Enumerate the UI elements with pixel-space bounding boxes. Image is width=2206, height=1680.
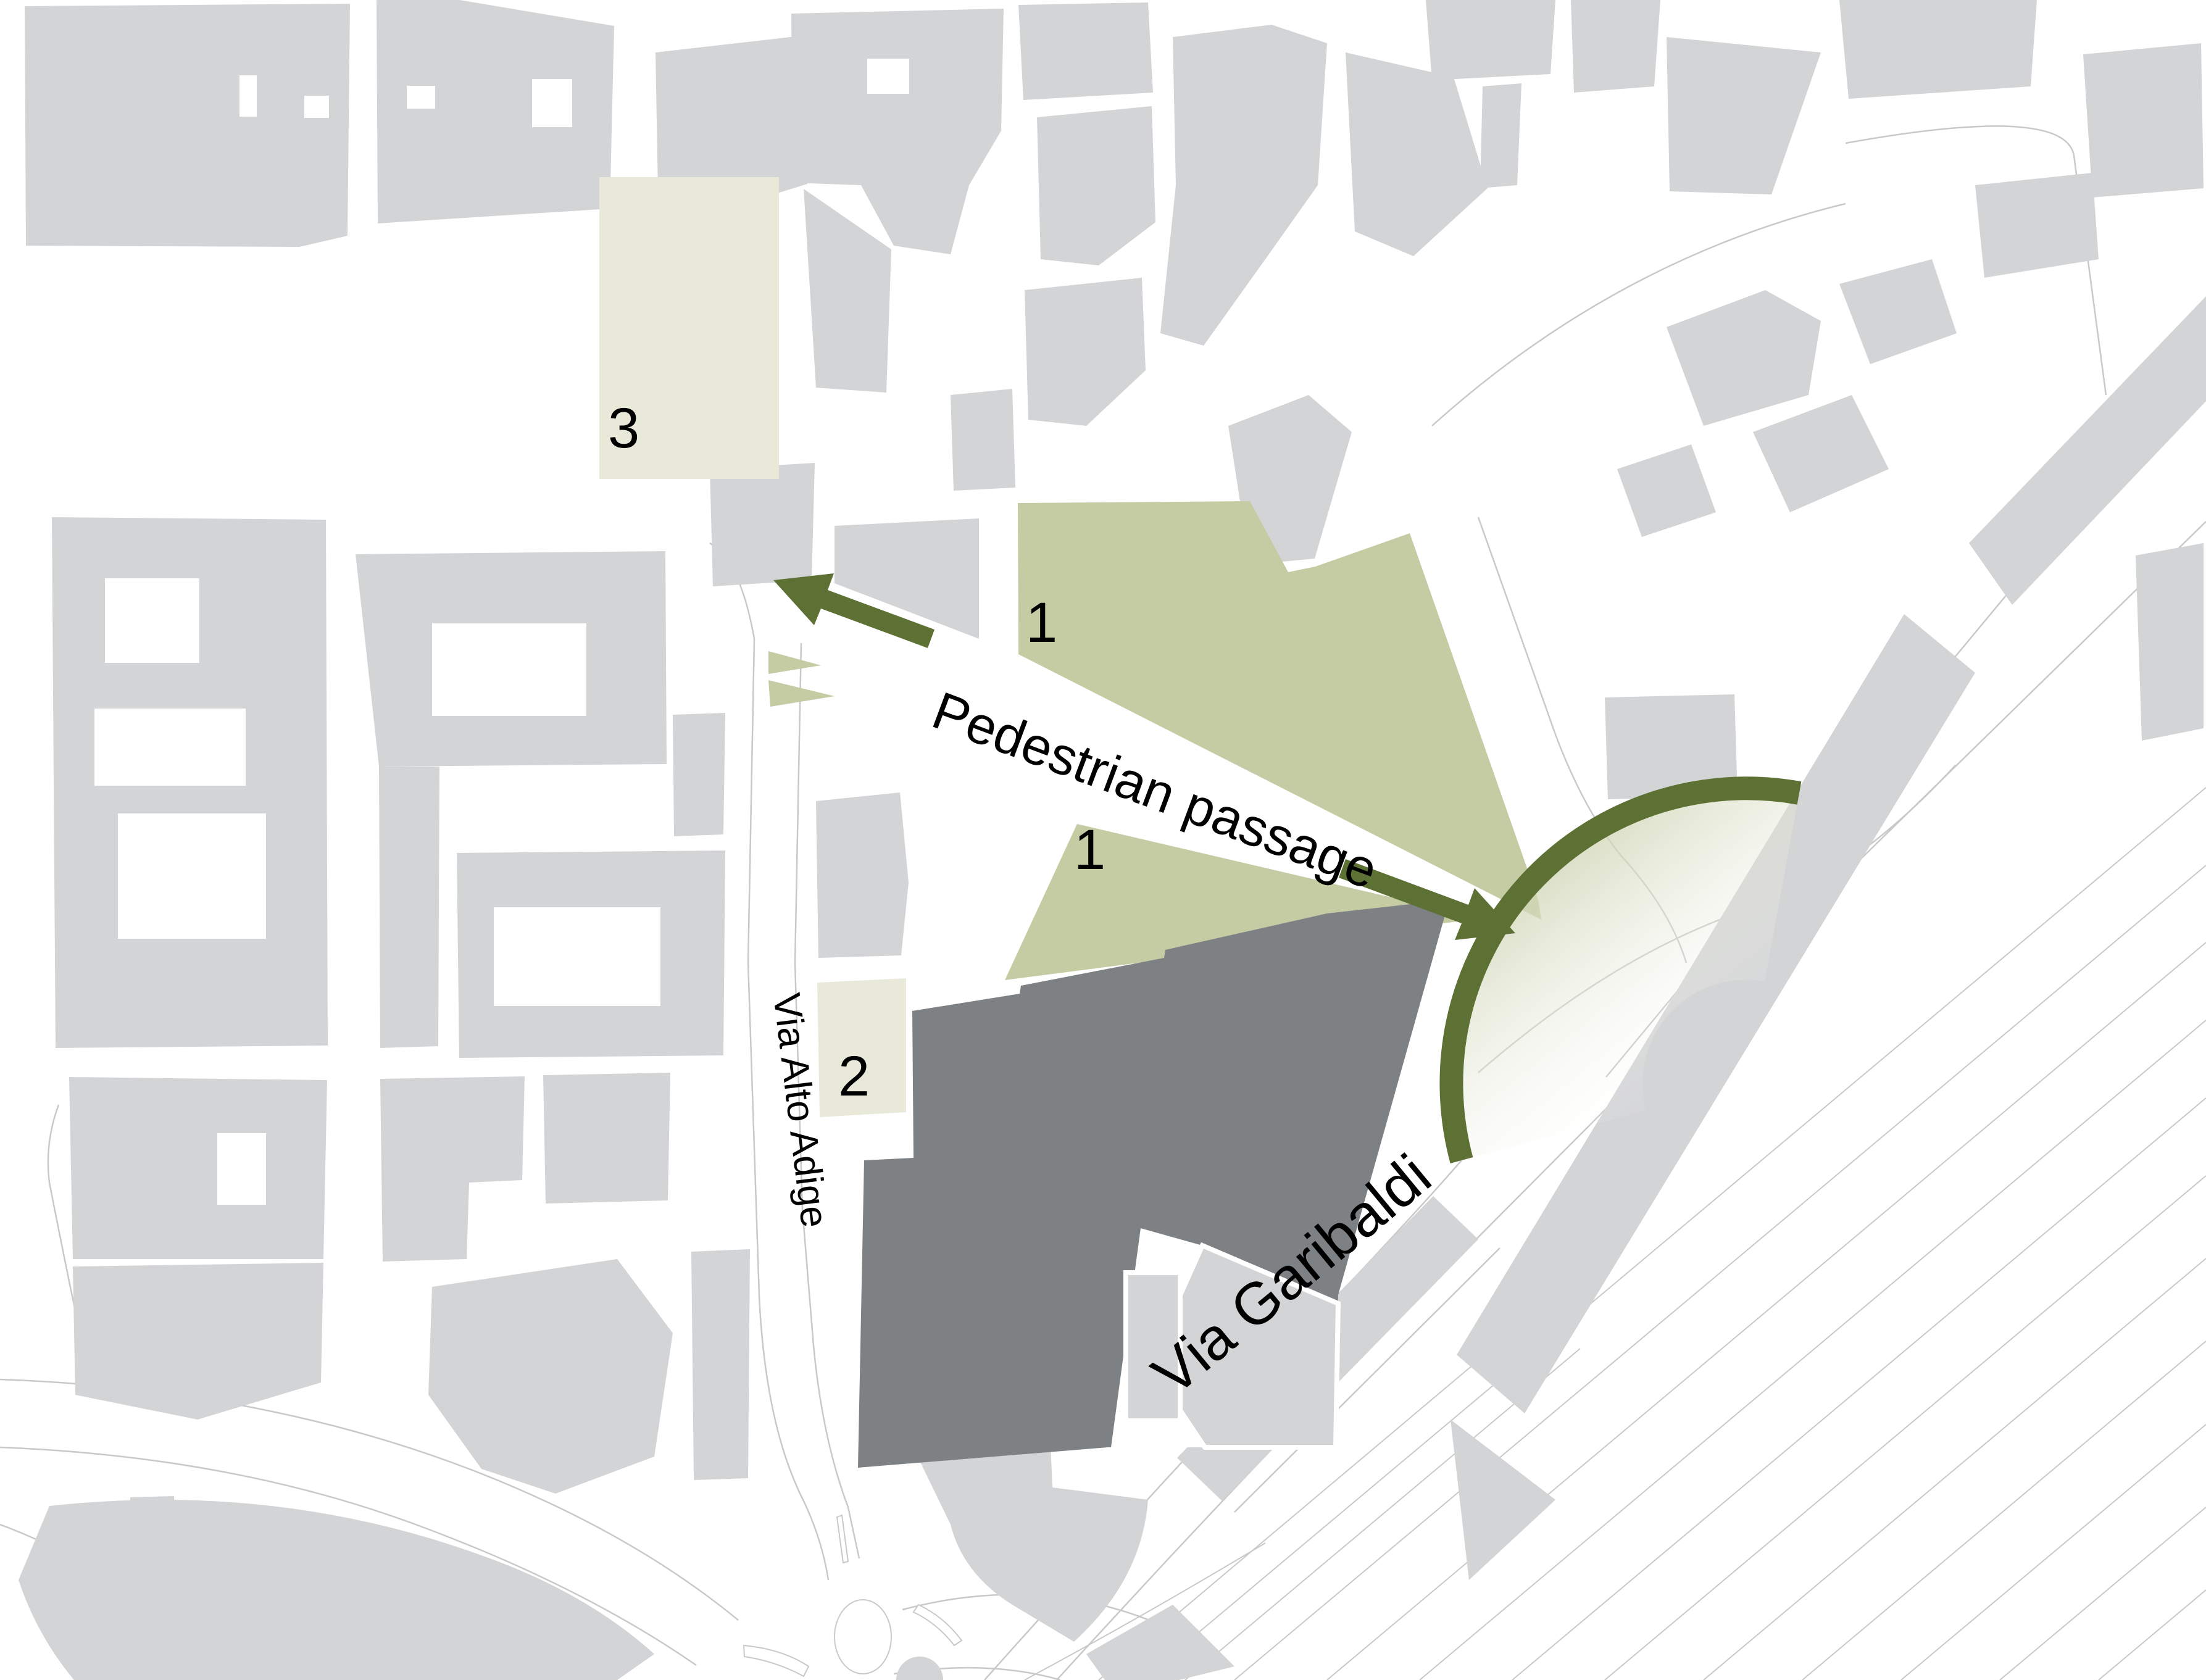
building-footprint <box>1160 25 1327 346</box>
building-footprint <box>73 1263 323 1420</box>
building-footprint <box>19 1500 654 1680</box>
building-footprint <box>1451 1420 1555 1580</box>
building-footprint <box>1025 278 1146 426</box>
roundabout <box>744 1515 962 1676</box>
building-footprint <box>25 4 350 247</box>
building-footprint <box>673 713 725 836</box>
roundabout-circle <box>835 1600 891 1674</box>
traffic-island <box>744 1645 809 1676</box>
marker-area-1-lower: 1 <box>1074 818 1105 881</box>
rail-line <box>2000 1507 2206 1680</box>
building-footprint <box>1037 106 1155 265</box>
marker-area-1-upper: 1 <box>1026 591 1057 654</box>
rail-line <box>1704 1258 2206 1680</box>
building-footprint <box>1018 2 1153 100</box>
marker-area-3: 3 <box>608 397 639 460</box>
building-footprint <box>428 1259 673 1494</box>
building-footprint <box>1086 1605 1234 1680</box>
building-footprint <box>457 850 725 1058</box>
building-footprint <box>356 551 667 767</box>
building-footprint <box>69 1077 327 1259</box>
building-footprint <box>52 517 328 1048</box>
rail-line <box>1901 1424 2206 1680</box>
building-footprint <box>1346 52 1488 256</box>
green-sliver <box>768 680 835 707</box>
building-footprint <box>1667 37 1821 194</box>
building-footprint <box>1839 259 1957 364</box>
rail-line <box>1802 1341 2206 1680</box>
site-plan-map: Pedestrian passage Via Alto Adige Via Ga… <box>0 0 2206 1680</box>
building-footprint <box>710 463 815 586</box>
building-footprint <box>1571 0 1660 93</box>
building-footprint <box>1617 444 1716 537</box>
building-footprint <box>816 792 909 958</box>
building-footprint <box>951 389 1015 491</box>
building-footprint <box>2136 543 2204 741</box>
green-sliver <box>768 651 821 674</box>
building-footprint <box>2083 43 2204 198</box>
building-footprint <box>380 1076 525 1262</box>
traffic-island <box>914 1605 962 1645</box>
rail-line <box>1605 1176 2206 1680</box>
building-footprint <box>1426 0 1555 80</box>
rail-line <box>2099 1590 2206 1680</box>
building-footprint <box>1480 83 1521 188</box>
site-plan-canvas: Pedestrian passage Via Alto Adige Via Ga… <box>0 0 2206 1680</box>
building-footprint <box>543 1073 670 1204</box>
building-footprint <box>130 1496 175 1518</box>
building-footprint <box>379 767 439 1048</box>
building-footprint <box>691 1249 750 1480</box>
building-footprint <box>377 0 614 223</box>
building-footprint <box>1667 290 1821 426</box>
marker-area-2: 2 <box>838 1045 870 1108</box>
building-footprint <box>1839 0 2037 99</box>
traffic-island <box>837 1515 848 1563</box>
building-footprint <box>804 189 891 393</box>
building-footprint <box>1975 173 2099 278</box>
building-footprint <box>896 1657 943 1680</box>
building-footprint <box>1753 395 1889 512</box>
